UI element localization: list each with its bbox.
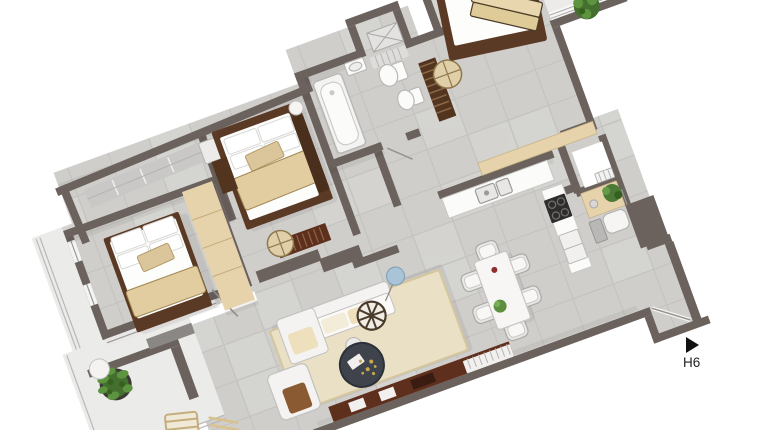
svg-text:H6: H6 xyxy=(683,355,700,370)
